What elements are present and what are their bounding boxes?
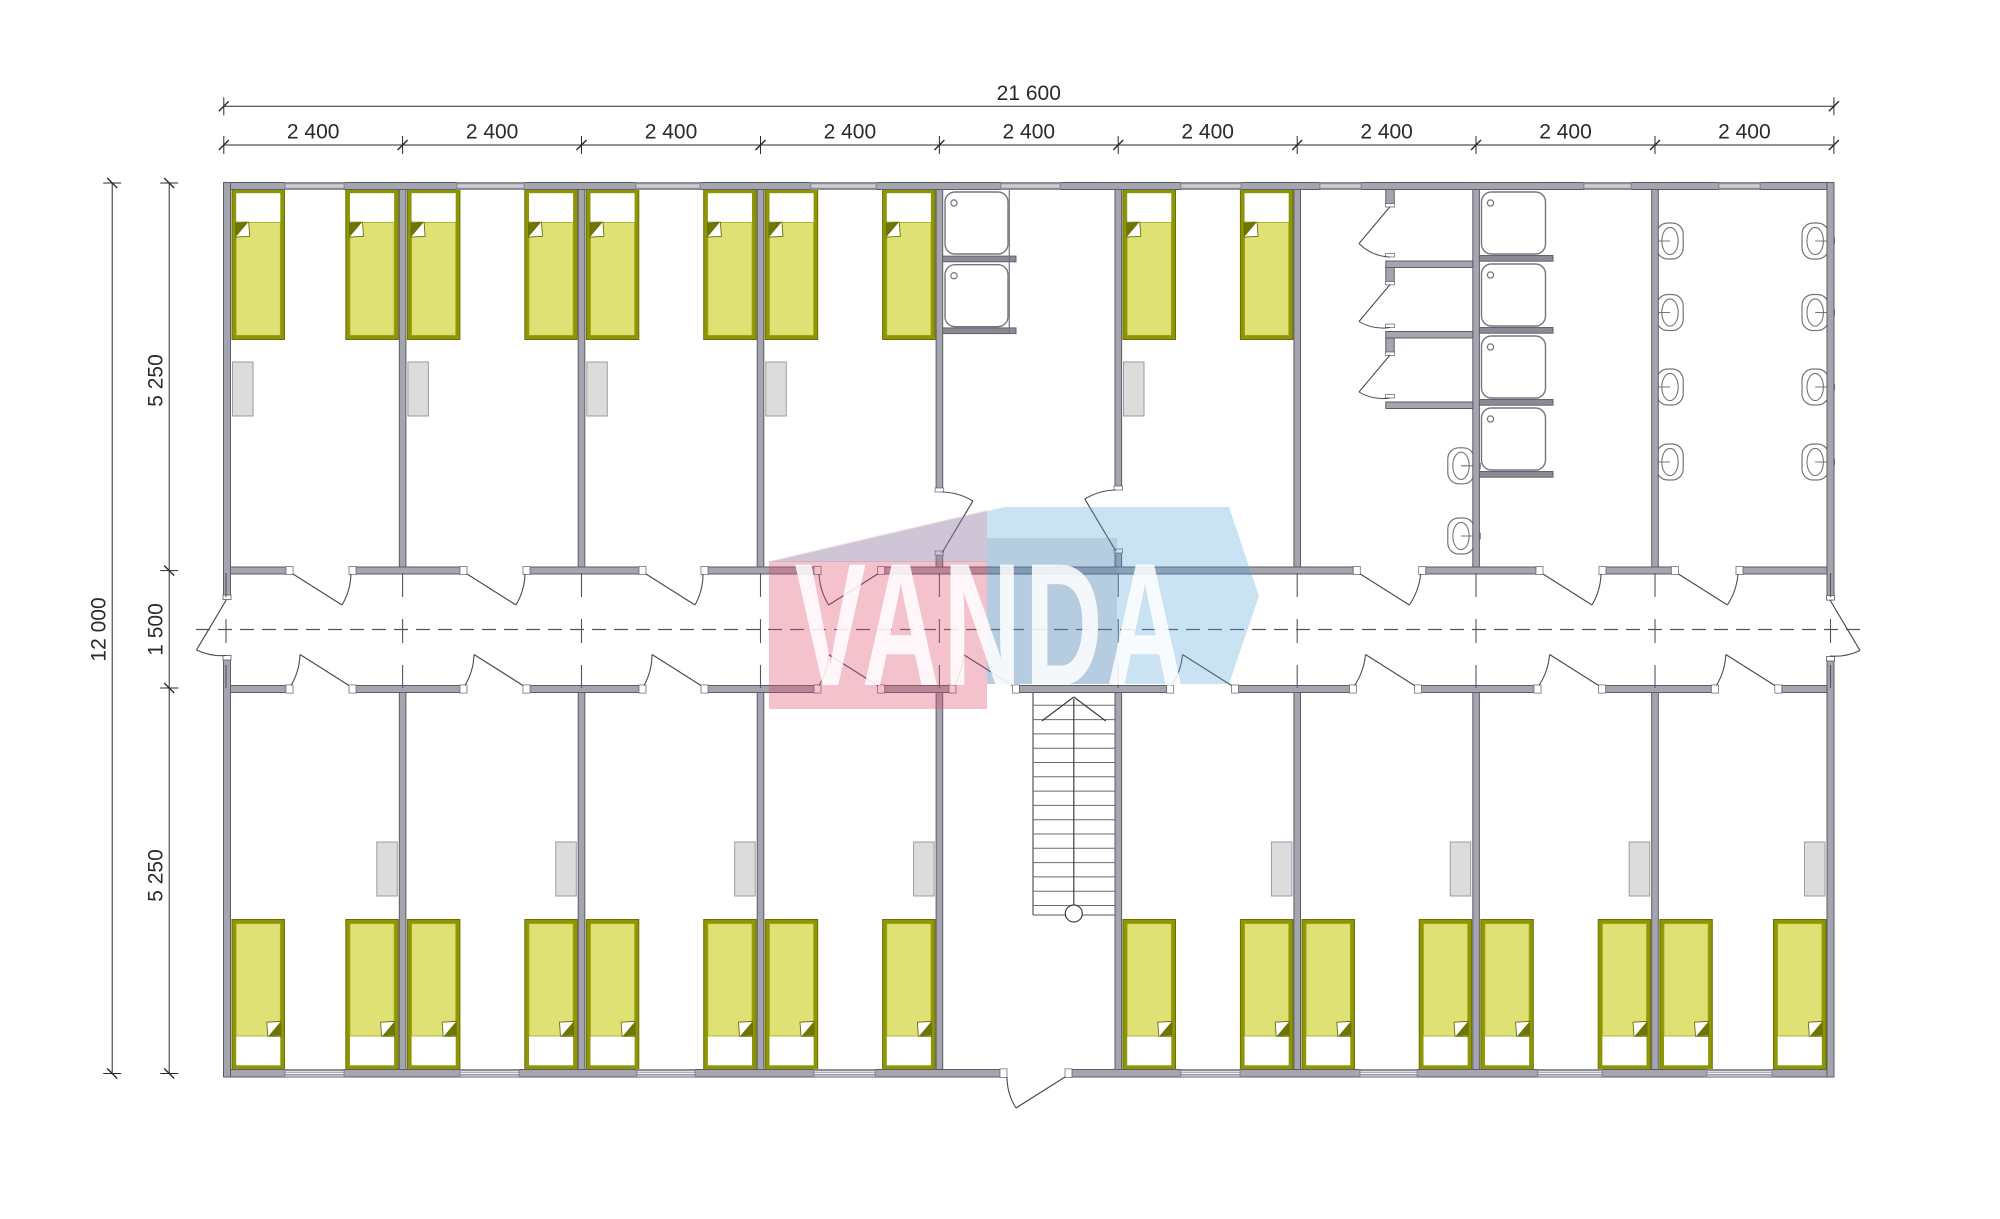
svg-text:2 400: 2 400 [1718, 121, 1771, 144]
svg-text:2 400: 2 400 [287, 121, 340, 144]
svg-text:2 400: 2 400 [1003, 121, 1056, 144]
svg-text:2 400: 2 400 [1181, 121, 1234, 144]
svg-text:2 400: 2 400 [466, 121, 519, 144]
svg-text:1 500: 1 500 [145, 603, 168, 656]
svg-text:2 400: 2 400 [1360, 121, 1413, 144]
svg-text:12 000: 12 000 [88, 597, 111, 661]
svg-text:5 250: 5 250 [145, 849, 168, 902]
svg-text:VANDA: VANDA [794, 526, 1187, 722]
svg-text:5 250: 5 250 [145, 354, 168, 407]
svg-text:2 400: 2 400 [824, 121, 877, 144]
svg-text:21 600: 21 600 [997, 82, 1061, 105]
svg-text:2 400: 2 400 [645, 121, 698, 144]
svg-text:2 400: 2 400 [1539, 121, 1592, 144]
